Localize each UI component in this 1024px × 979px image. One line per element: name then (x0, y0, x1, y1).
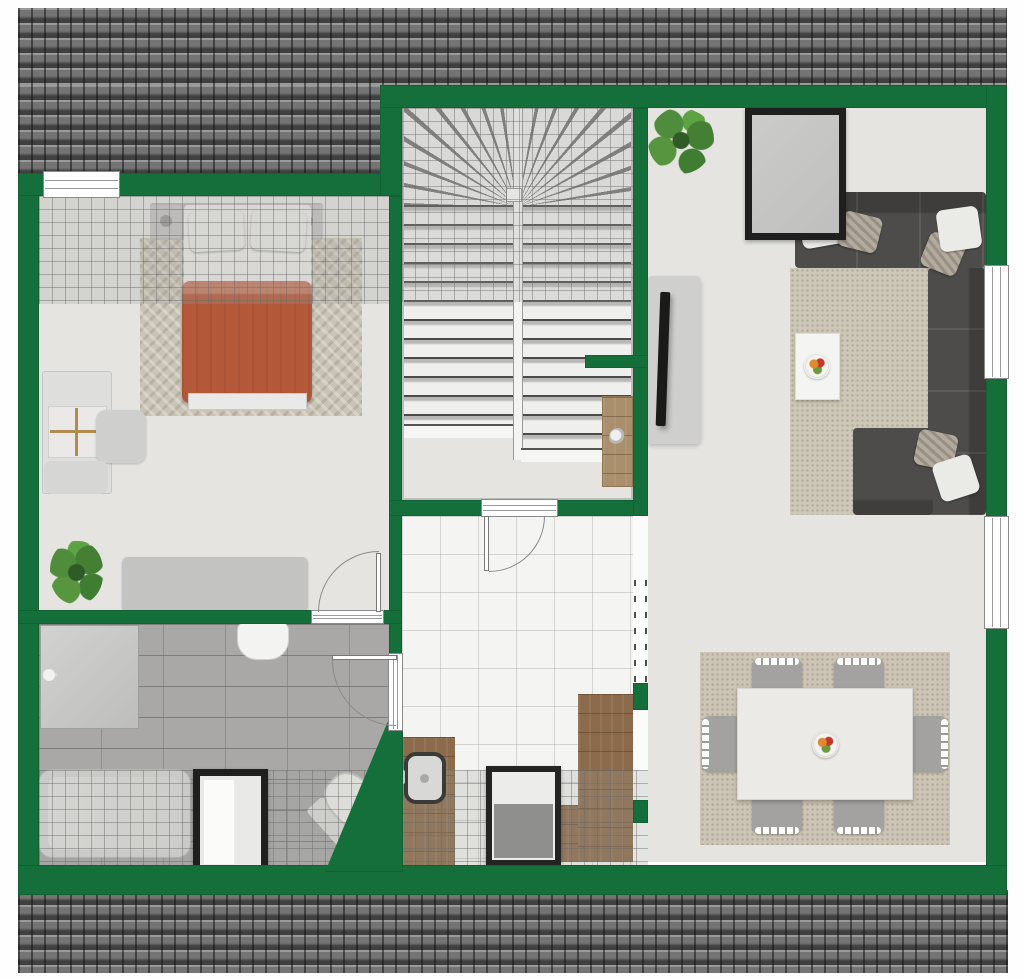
wall-mirror (745, 108, 846, 240)
dining-room-window (984, 516, 1009, 629)
wall-stub-passage-1 (633, 683, 648, 710)
bedroom-door-threshold (311, 610, 384, 624)
living-room-window (984, 265, 1009, 379)
passage-dashed-line-left (634, 580, 636, 683)
hall-cabinet-drum (494, 804, 553, 858)
bedroom-plant (50, 541, 103, 604)
shower-head-icon (43, 669, 55, 681)
hall-sink-basin (404, 752, 446, 804)
wall-stub-under-stairs (585, 355, 648, 368)
wall-outer-right (986, 85, 1007, 890)
dining-fruit-bowl (812, 731, 839, 758)
bedroom-dresser (122, 557, 308, 612)
hall-sink-drain (420, 774, 429, 783)
hall-cabinet (486, 766, 561, 866)
desk-chair (96, 410, 146, 463)
bathroom-sink (237, 622, 289, 660)
bedroom-window (43, 171, 120, 198)
coffee-table-fruit-bowl (804, 353, 830, 379)
roof-slope-overlay-stairs (402, 108, 633, 302)
wall-bedroom-right (389, 196, 402, 655)
desk-drawer-handle-v (75, 408, 78, 456)
wall-top-right-section (380, 85, 1007, 108)
dining-chair-right (908, 716, 948, 772)
roof-slope-overlay-bedroom (39, 196, 389, 304)
hallway-door-threshold (481, 499, 558, 517)
roof-band-top (18, 8, 1007, 85)
desk-bench (44, 461, 108, 494)
wall-outer-left (18, 173, 39, 895)
passage-dashed-line-right (645, 580, 647, 683)
floor-plan-canvas (0, 0, 1024, 979)
wall-stub-passage-2 (633, 800, 648, 823)
stair-bottom-step-left (404, 424, 513, 438)
bathroom-skylight (193, 769, 268, 872)
dining-chair-left (702, 716, 742, 772)
wall-stair-living-divider (633, 108, 648, 516)
sofa-pillow-4 (935, 205, 982, 252)
roof-band-bottom (18, 890, 1008, 973)
wall-outer-bottom (18, 865, 1007, 895)
sideboard-plant-pot (609, 428, 626, 446)
bed-footboard (188, 393, 307, 410)
roof-band-top-left (18, 85, 380, 173)
skylight-glass (204, 780, 234, 864)
shower (40, 625, 139, 729)
